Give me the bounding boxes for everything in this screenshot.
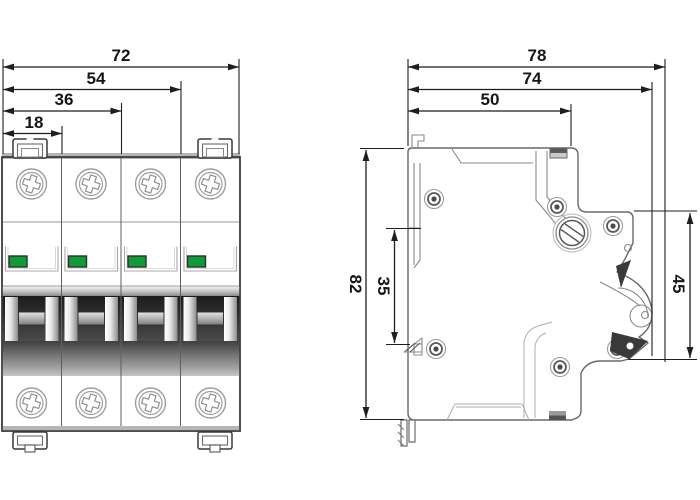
front-view <box>2 138 240 452</box>
rivet <box>425 190 444 209</box>
clip-pull-tab <box>398 420 415 446</box>
rivet <box>551 358 570 377</box>
dim-label-35: 35 <box>374 277 393 296</box>
front-dimensions: 72 54 36 18 <box>3 46 239 154</box>
bottom-edge-tab <box>549 411 566 420</box>
technical-drawing: 72 54 36 18 <box>0 0 700 500</box>
terminal-screw <box>196 388 226 418</box>
din-clip-bottom-right <box>198 432 232 452</box>
latch-pawl-upper <box>616 260 631 288</box>
side-view <box>398 135 652 446</box>
inner-slot <box>524 322 552 418</box>
rivet <box>427 340 446 359</box>
indicator-window <box>184 247 237 272</box>
terminal-screw <box>136 169 166 199</box>
terminal-screw <box>196 169 226 199</box>
top-chamfer <box>452 149 533 163</box>
dim-label-50: 50 <box>481 90 500 109</box>
breaker-body-side <box>408 148 652 420</box>
terminal-screw-side <box>553 214 591 252</box>
extension-lines <box>408 59 665 362</box>
dim-label-82: 82 <box>346 275 365 294</box>
dim-label-45: 45 <box>669 275 688 294</box>
top-edge-tab <box>550 148 567 158</box>
dim-label-78: 78 <box>528 46 547 65</box>
terminal-screw <box>136 388 166 418</box>
terminal-screw <box>76 169 106 199</box>
din-rail-channel <box>414 163 420 268</box>
indicator-window <box>6 247 59 272</box>
din-clip-top-left <box>13 138 47 158</box>
dim-label-72: 72 <box>112 46 131 65</box>
dim-label-36: 36 <box>55 90 74 109</box>
din-clip-bottom-left <box>13 432 47 452</box>
terminal-screw <box>17 388 47 418</box>
rivet <box>548 198 567 217</box>
terminal-screw <box>17 169 47 199</box>
indicator-window <box>65 247 118 272</box>
terminal-screw <box>76 388 106 418</box>
rivet <box>604 217 623 236</box>
dim-label-74: 74 <box>523 69 542 88</box>
din-latch <box>404 338 422 355</box>
din-hook-tab <box>412 135 424 148</box>
din-clip-top-right <box>198 138 232 158</box>
drawing-svg: 72 54 36 18 <box>0 0 700 500</box>
dim-label-54: 54 <box>87 69 106 88</box>
indicator-window <box>125 247 178 272</box>
dim-label-18: 18 <box>25 113 44 132</box>
side-dimensions: 78 74 50 82 35 45 <box>346 46 697 420</box>
pawl-pin <box>627 343 634 350</box>
bottom-step-lines <box>447 404 529 420</box>
